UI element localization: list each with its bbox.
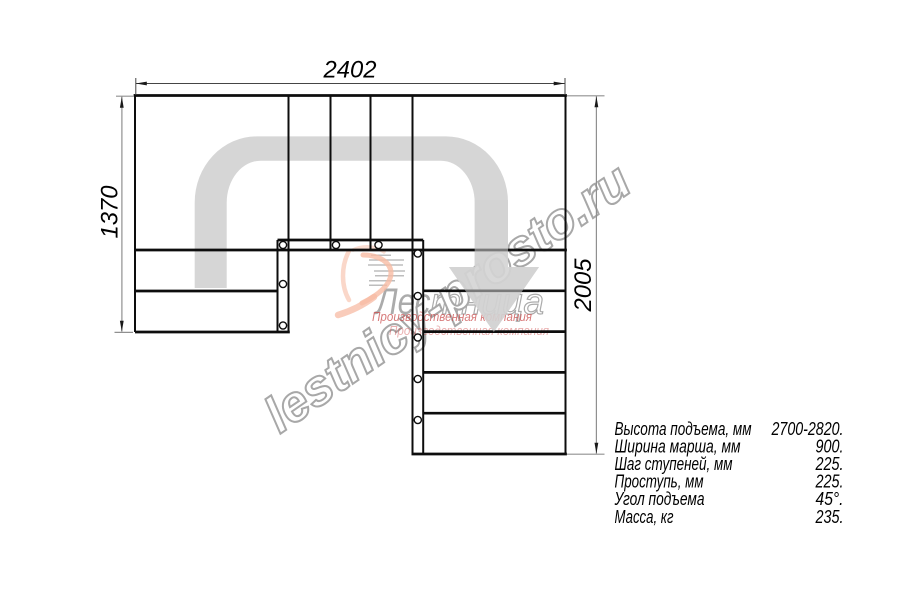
svg-text:2005: 2005 — [570, 258, 597, 312]
svg-text:Масса, кг: Масса, кг — [615, 507, 674, 527]
svg-text:235.: 235. — [815, 507, 844, 527]
svg-text:2402: 2402 — [323, 57, 377, 84]
svg-text:1370: 1370 — [97, 185, 124, 238]
